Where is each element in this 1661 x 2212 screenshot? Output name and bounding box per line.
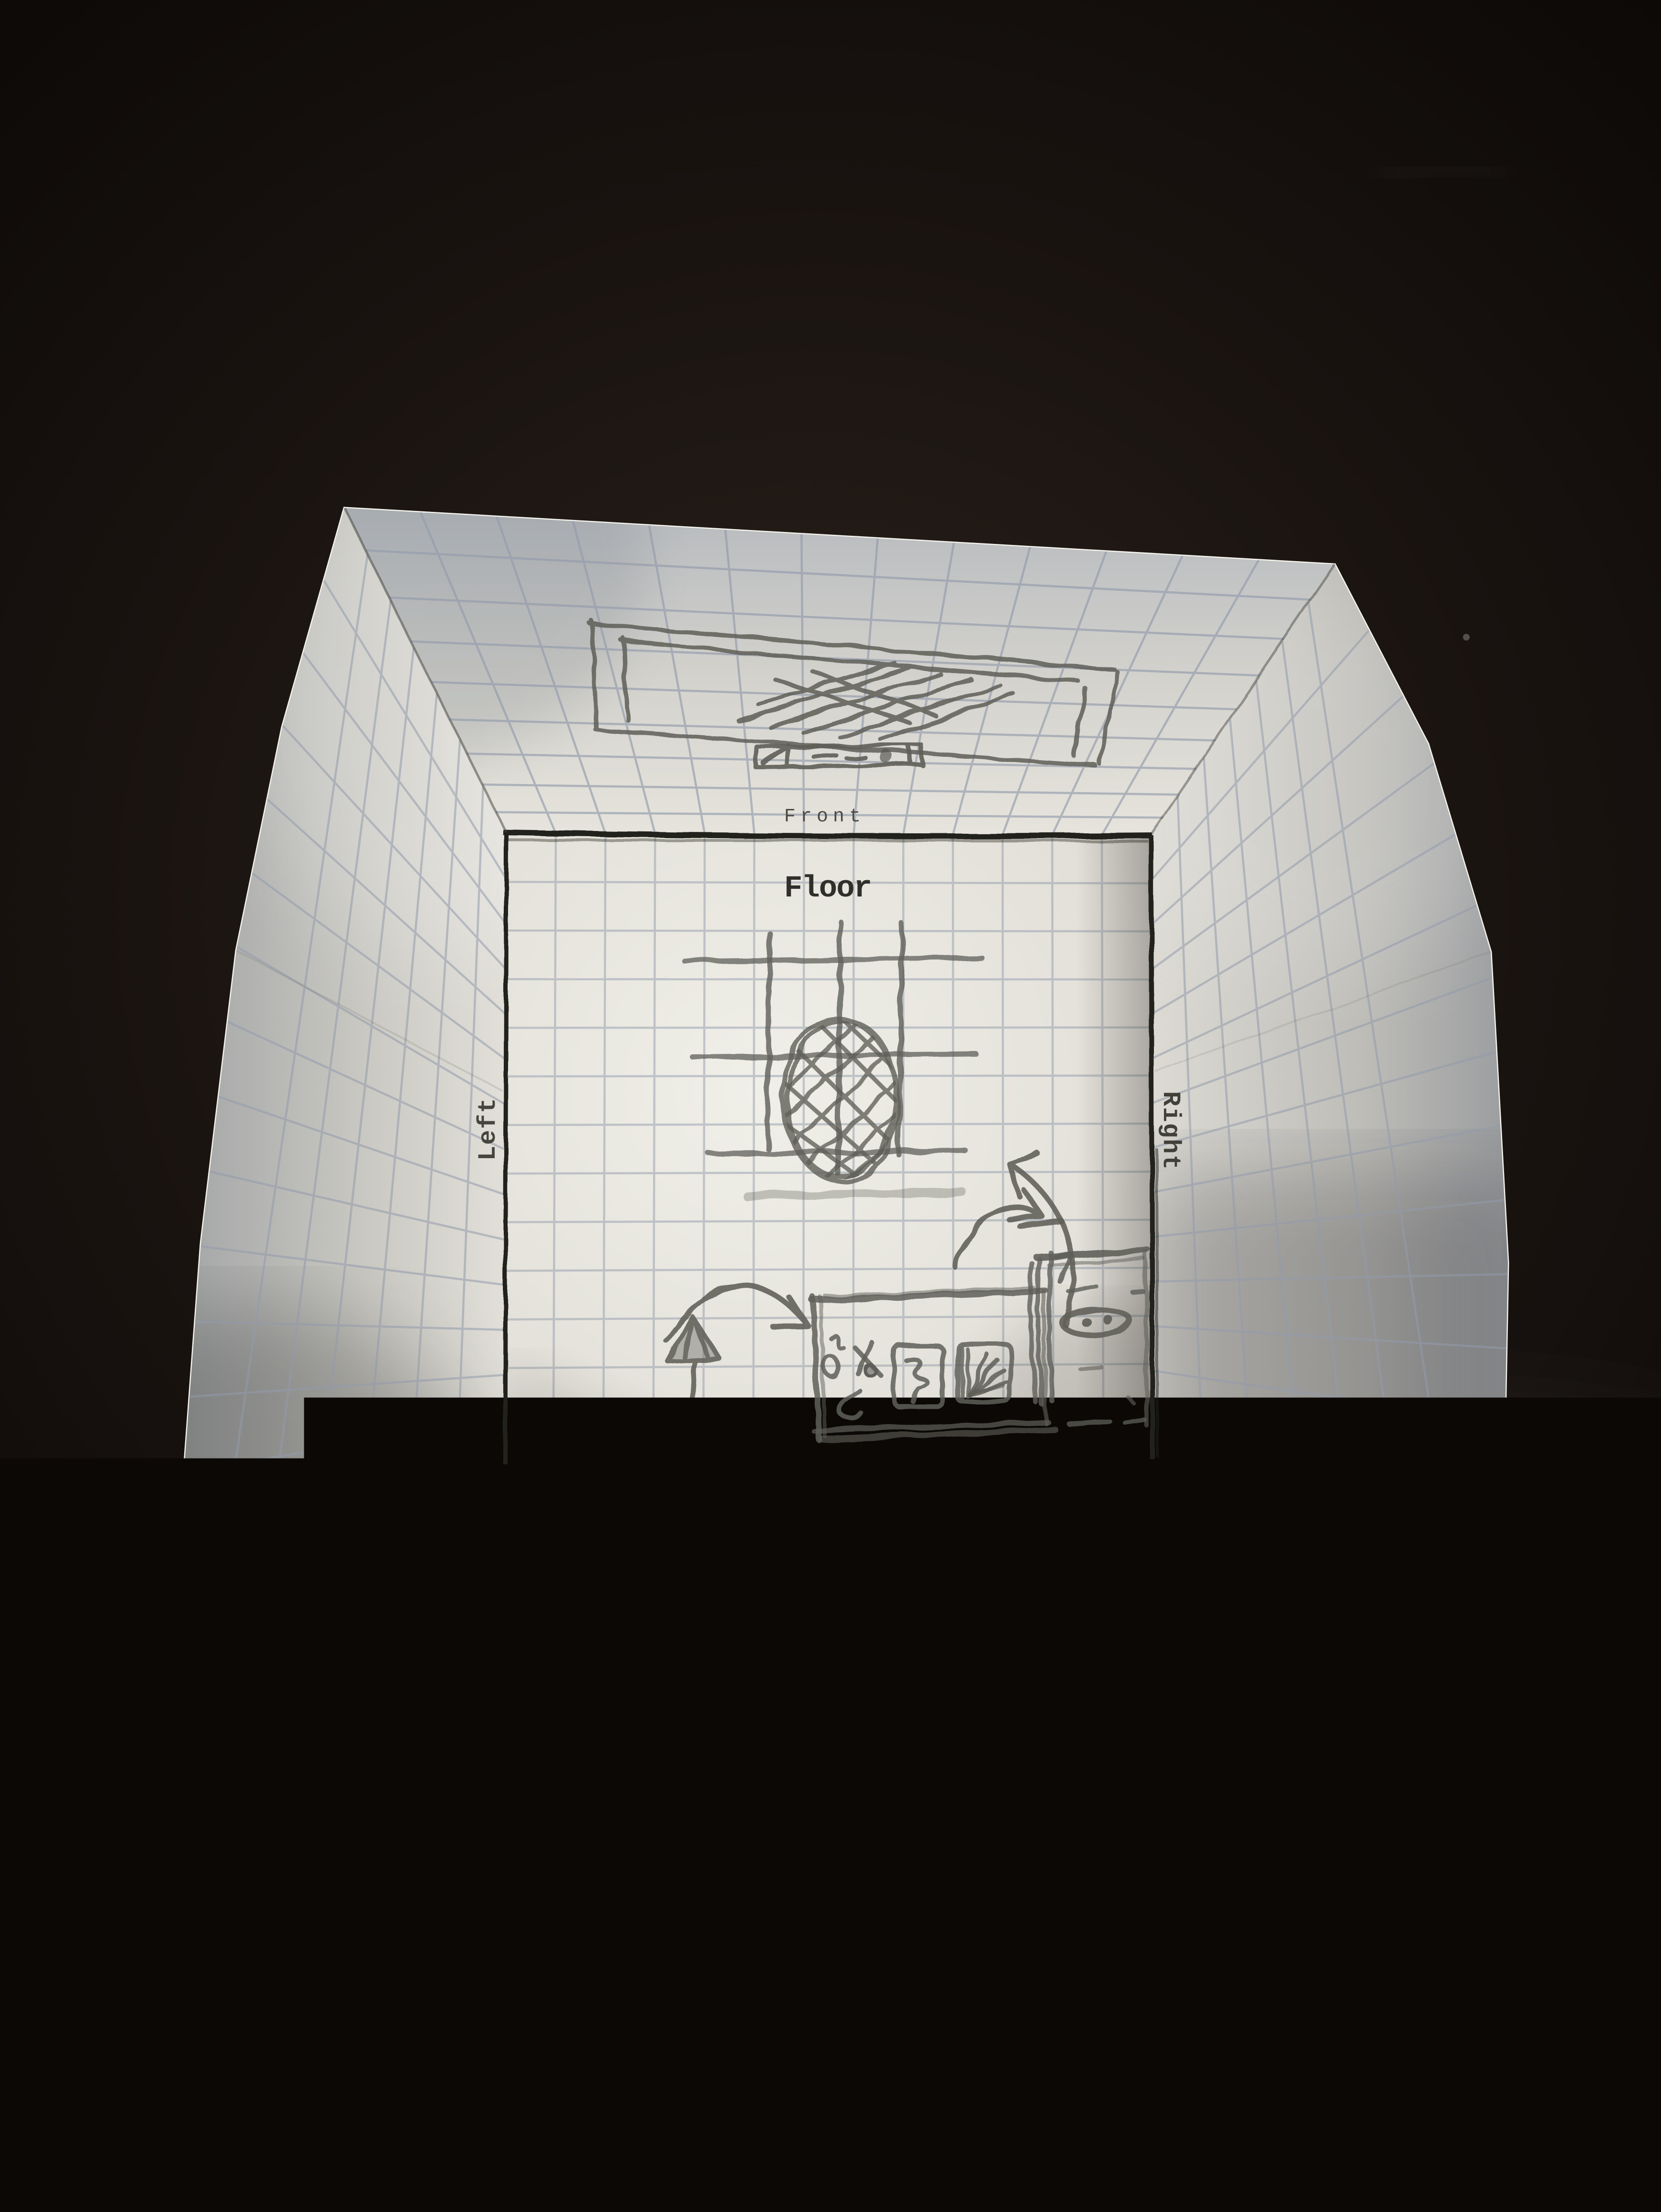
photo-root: Front Floor Left Right [0, 0, 1661, 2212]
scene-svg: Front Floor Left Right [0, 0, 1661, 2212]
